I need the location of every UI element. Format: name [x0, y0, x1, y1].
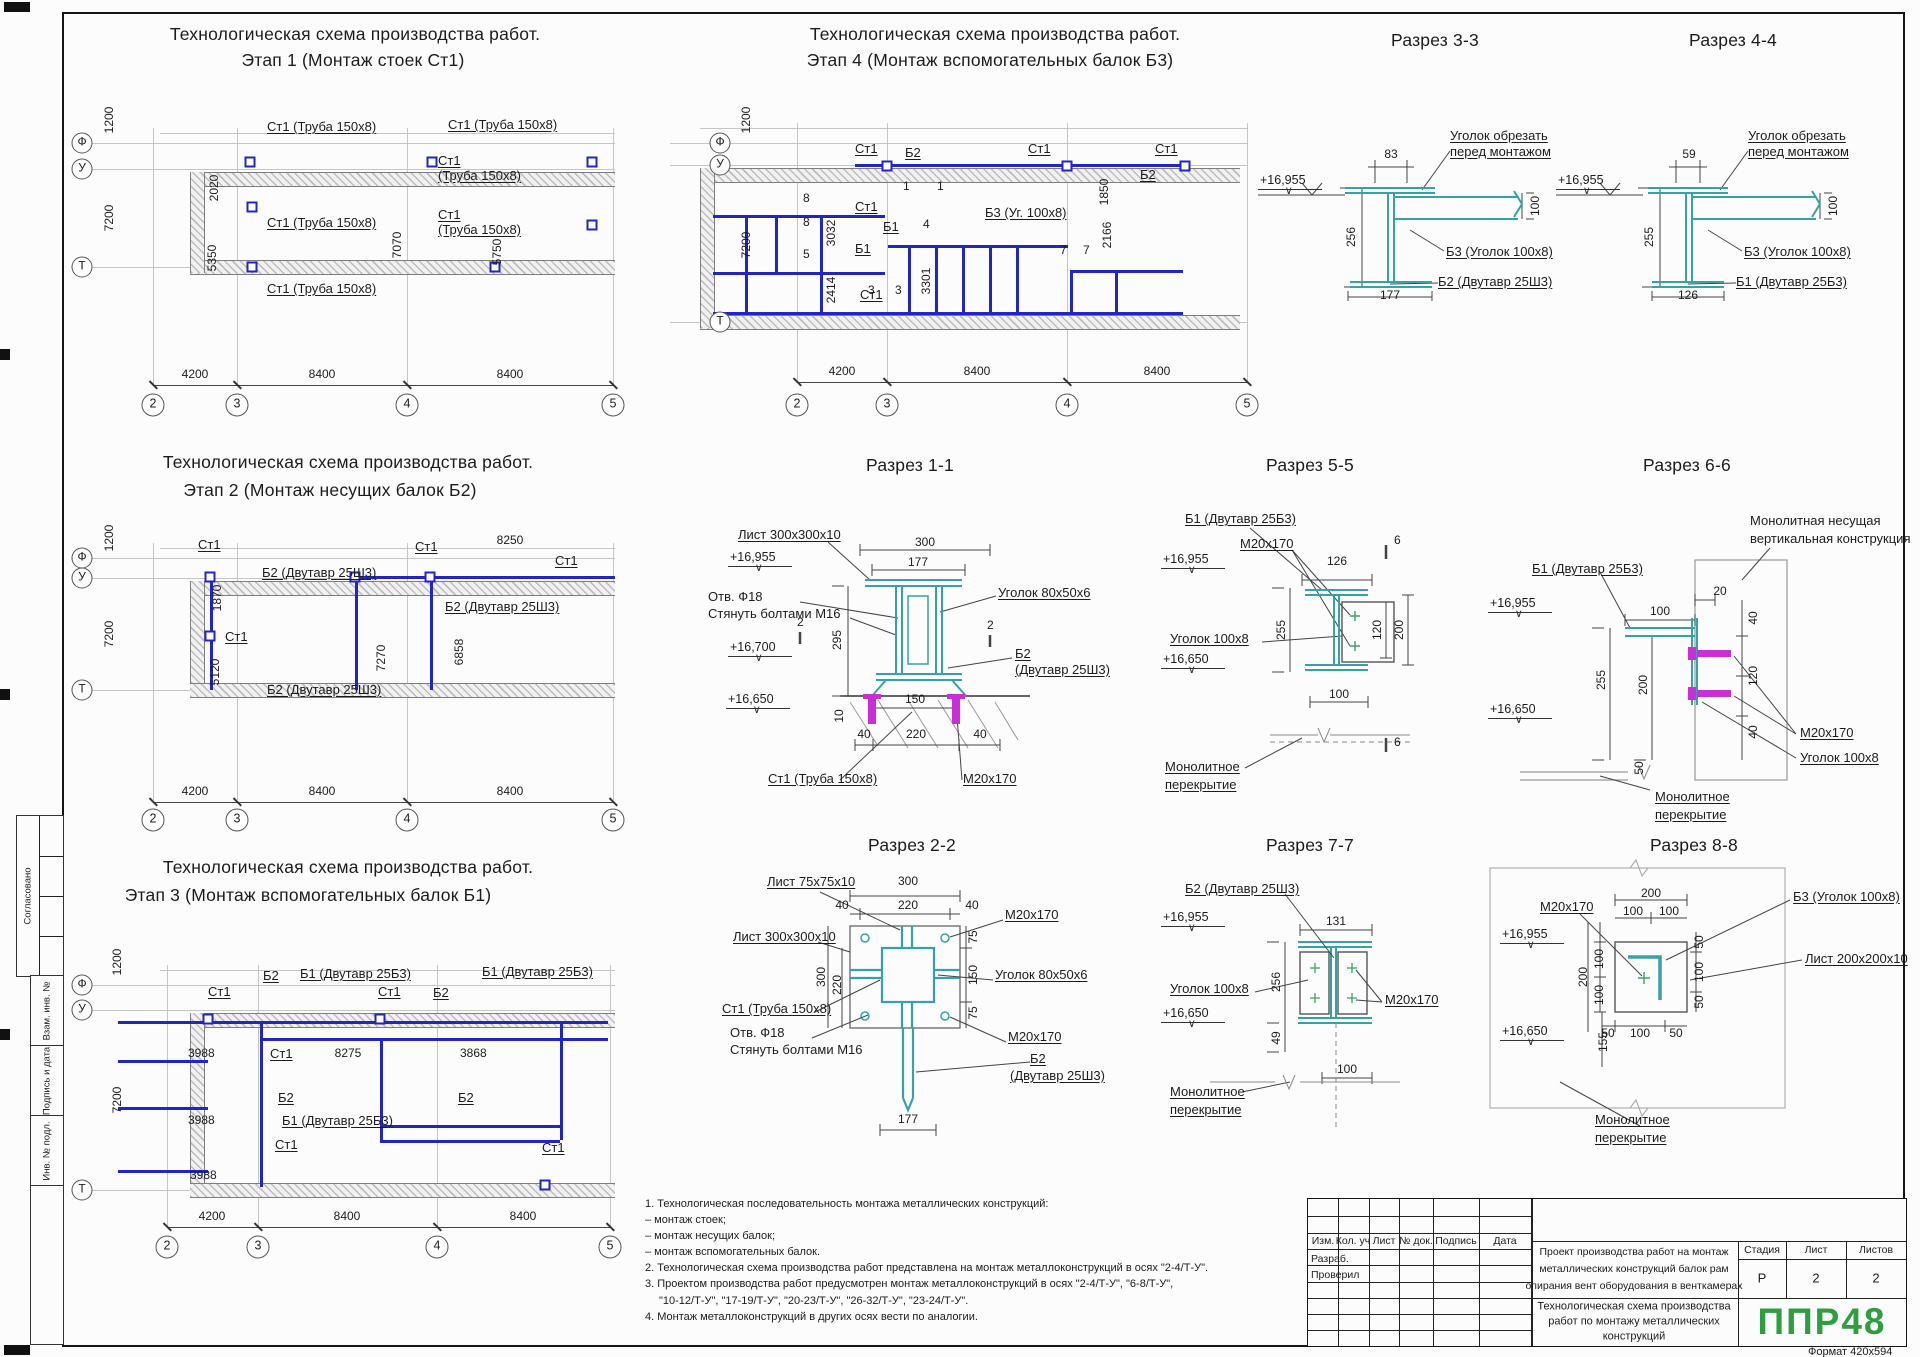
label-b2: Б2	[1140, 168, 1156, 183]
elevation: +16,955	[1161, 552, 1225, 569]
label-st1: Ст1 (Труба 150х8)	[722, 1002, 831, 1017]
section-5-5: Разрез 5-5 Б1 (	[1150, 450, 1440, 830]
dim: 3301	[920, 268, 934, 295]
dim: 7200	[111, 1087, 125, 1114]
dim: 100	[1623, 905, 1643, 919]
note-line: "10-12/Т-У", "17-19/Т-У", "20-23/Т-У", "…	[659, 1295, 968, 1308]
plan1-title-line1: Технологическая схема производства работ…	[170, 24, 540, 44]
elevation: +16,650	[1500, 1024, 1564, 1041]
label-otv: Отв. Ф18	[708, 590, 763, 605]
dim: 4200	[182, 368, 209, 382]
label-mono: Монолитное	[1170, 1085, 1245, 1100]
label-st1: (Труба 150х8)	[438, 223, 521, 238]
dim: 2020	[208, 175, 222, 202]
tb-header-kol: Кол. уч	[1336, 1235, 1370, 1247]
label-angle100: Уголок 100х8	[1170, 632, 1249, 647]
dim: 100	[1693, 962, 1707, 982]
dim: 40	[1747, 725, 1761, 738]
label-m20: М20х170	[1540, 900, 1593, 915]
label-mono: Монолитное	[1655, 790, 1730, 805]
sec-mark: 8	[803, 216, 810, 230]
label-sheet75: Лист 75х75х10	[767, 875, 855, 890]
dim: 8400	[309, 785, 336, 799]
column-st1	[540, 1180, 551, 1191]
dim: 120	[1747, 666, 1761, 686]
dim: 3988	[188, 1047, 215, 1061]
column-st1	[245, 157, 256, 168]
dim: 177	[898, 1113, 918, 1127]
dim: 7270	[375, 645, 389, 672]
tb-razrab: Разраб.	[1311, 1253, 1349, 1265]
edge-mark	[4, 2, 30, 12]
sign-date-label: Подпись и дата	[42, 1047, 53, 1115]
label-b1: Б1 (Двутавр 25Б3)	[282, 1114, 393, 1129]
tb-proveril: Проверил	[1311, 1269, 1359, 1281]
beam-b1	[713, 215, 885, 218]
wall	[190, 683, 615, 698]
stamp-cell-empty	[30, 1185, 64, 1345]
beam-b2	[355, 578, 358, 690]
label-b2: Б2	[905, 146, 921, 161]
axis-bubble-5: 5	[1236, 394, 1259, 417]
column-st1	[882, 161, 893, 172]
tb-header-list: Лист	[1373, 1235, 1396, 1247]
label-st1: Ст1	[438, 208, 461, 223]
plan-stage4: Технологическая схема производства работ…	[640, 20, 1260, 420]
dim: 50	[1633, 761, 1647, 774]
elevation: +16,650	[1488, 702, 1552, 719]
stamp-cell-vzam: Взам. инв. №	[30, 975, 64, 1047]
label-b3: Б3 (Уголок 100х8)	[1446, 245, 1553, 260]
sec-mark: 4	[923, 218, 930, 232]
tb-header-data: Дата	[1493, 1235, 1516, 1247]
dim: 50	[1669, 1027, 1682, 1041]
dim: 40	[965, 899, 978, 913]
label-b2: Б2 (Двутавр 25Ш3)	[1185, 882, 1299, 897]
beam-b3	[1070, 270, 1073, 312]
label-b2: Б2 (Двутавр 25Ш3)	[262, 566, 376, 581]
axis-bubble-5: 5	[602, 394, 625, 417]
edge-mark	[4, 1345, 30, 1355]
label-otv: Отв. Ф18	[730, 1026, 785, 1041]
dim: 126	[1327, 555, 1347, 569]
label-st1: Ст1	[270, 1047, 293, 1062]
dim: 1870	[211, 585, 225, 612]
plan2-title-line1: Технологическая схема производства работ…	[163, 452, 533, 472]
column-st1	[247, 202, 258, 213]
dim: 8400	[309, 368, 336, 382]
beam-b3	[1016, 245, 1019, 312]
beam-b1	[380, 1125, 560, 1128]
axis-bubble-4: 4	[396, 809, 419, 832]
dim: 300	[815, 967, 829, 987]
dim: 7070	[391, 232, 405, 259]
dim: 8400	[964, 365, 991, 379]
tb-sheet-value: 2	[1812, 1272, 1819, 1287]
dim: 1200	[103, 525, 117, 552]
dim: 255	[1643, 227, 1657, 247]
sec-mark: 5	[803, 248, 810, 262]
dim: 100	[1650, 605, 1670, 619]
plan-stage2: Технологическая схема производства работ…	[70, 450, 630, 830]
axis-bubble-f: Ф	[72, 975, 93, 996]
wall	[190, 172, 615, 187]
axis-bubble-u: У	[72, 159, 93, 180]
dim: 256	[1345, 227, 1359, 247]
elevation: +16,650	[726, 692, 790, 709]
dim: 20	[1713, 585, 1726, 599]
sec-mark: 6	[1394, 736, 1401, 750]
edge-mark	[0, 1029, 10, 1040]
dim: 3988	[188, 1114, 215, 1128]
tb-header-dok: № док.	[1399, 1235, 1433, 1247]
axis-bubble-4: 4	[1056, 394, 1079, 417]
dim: 1200	[103, 107, 117, 134]
column-st1	[587, 157, 598, 168]
label-cut: Уголок обрезать	[1450, 129, 1548, 144]
label-b2: Б2 (Двутавр 25Ш3)	[1438, 275, 1552, 290]
sec-mark: 2	[987, 619, 994, 633]
dim: 40	[835, 899, 848, 913]
title-block: Изм. Кол. уч Лист № док. Подпись Дата Ра…	[1307, 1198, 1907, 1347]
approved-label: Согласовано	[23, 867, 34, 924]
tb-header-sheets: Листов	[1859, 1244, 1893, 1256]
edge-mark	[0, 689, 10, 700]
axis-bubble-4: 4	[396, 394, 419, 417]
dim: 255	[1595, 670, 1609, 690]
axis-bubble-2: 2	[156, 1236, 179, 1259]
label-wall: вертикальная конструкция	[1750, 532, 1911, 547]
axis-bubble-t: Т	[72, 680, 93, 701]
plan3-title-line1: Технологическая схема производства работ…	[163, 857, 533, 877]
label-b2: Б2	[1030, 1052, 1046, 1067]
tb-sheets-value: 2	[1872, 1272, 1879, 1287]
axis-bubble-2: 2	[142, 809, 165, 832]
tb-doc-line3: конструкций	[1603, 1331, 1666, 1344]
label-st1: Ст1	[438, 154, 461, 169]
label-b2: (Двутавр 25Ш3)	[1010, 1069, 1105, 1084]
tb-doc-line2: работ по монтажу металлических	[1548, 1316, 1720, 1329]
plan-stage3: Технологическая схема производства работ…	[70, 855, 630, 1255]
label-b1: Б1 (Двутавр 25Б3)	[300, 967, 411, 982]
tb-project-line3: опирания вент оборудования в венткамерах	[1525, 1280, 1742, 1292]
dim: 4200	[182, 785, 209, 799]
sec-mark: 6	[1394, 534, 1401, 548]
wall	[190, 581, 615, 596]
label-st1: Ст1 (Труба 150х8)	[267, 120, 376, 135]
label-st1: Ст1	[860, 288, 883, 303]
sec-mark: 7	[1083, 244, 1090, 258]
drawing-sheet: Технологическая схема производства работ…	[0, 0, 1920, 1357]
dim: 100	[1593, 949, 1607, 969]
sec-mark: 1	[903, 180, 910, 194]
axis-bubble-u: У	[72, 1000, 93, 1021]
sec-mark: 8	[803, 192, 810, 206]
label-mono: Монолитное	[1165, 760, 1240, 775]
dim: 8400	[1144, 365, 1171, 379]
dim: 8275	[335, 1047, 362, 1061]
label-st1: Ст1	[1028, 142, 1051, 157]
beam-b3	[962, 245, 965, 312]
column-st1	[587, 220, 598, 231]
label-wall: Монолитная несущая	[1750, 514, 1881, 529]
elevation: +16,955	[1500, 927, 1564, 944]
axis-bubble-2: 2	[786, 394, 809, 417]
plan4-title-line1: Технологическая схема производства работ…	[810, 24, 1180, 44]
section-1-1: Разрез 1-1	[700, 450, 1100, 810]
column-st1	[375, 1014, 386, 1025]
label-mono: перекрытие	[1595, 1131, 1666, 1146]
dim: 7200	[740, 232, 754, 259]
dim: 1200	[111, 949, 125, 976]
dim: 8400	[334, 1210, 361, 1224]
axis-bubble-f: Ф	[72, 548, 93, 569]
label-st1: Ст1 (Труба 150х8)	[768, 772, 877, 787]
plan3-title-line2: Этап 3 (Монтаж вспомогательных балок Б1)	[125, 885, 492, 905]
dim: 100	[1659, 905, 1679, 919]
axis-bubble-3: 3	[247, 1236, 270, 1259]
elevation: +16,650	[1161, 1006, 1225, 1023]
axis-bubble-u: У	[710, 155, 731, 176]
dim: 8400	[510, 1210, 537, 1224]
tb-stage-value: Р	[1758, 1272, 1767, 1287]
label-b1: Б1 (Двутавр 25Б3)	[1736, 275, 1847, 290]
elevation: +16,955	[1161, 910, 1225, 927]
dim: 5120	[209, 659, 223, 686]
label-st1: (Труба 150х8)	[438, 169, 521, 184]
label-sheet200: Лист 200х200х10	[1805, 952, 1908, 967]
section-8-8: Разрез 8-8 М20х170 200 100 100	[1480, 830, 1910, 1160]
beam-b2	[260, 1038, 608, 1041]
dim: 6858	[453, 639, 467, 666]
label-angle80: Уголок 80х50х6	[998, 586, 1091, 601]
note-line: – монтаж несущих балок;	[645, 1230, 775, 1243]
tb-project-line1: Проект производства работ на монтаж	[1539, 1246, 1728, 1258]
dim: 75	[967, 930, 981, 943]
note-line: 1. Технологическая последовательность мо…	[645, 1198, 1048, 1211]
inv-label: Инв. № подл.	[42, 1121, 53, 1180]
dim: 100	[1630, 1027, 1650, 1041]
label-angle100: Уголок 100х8	[1800, 751, 1879, 766]
beam-b3	[1115, 270, 1118, 312]
label-st1: Ст1 (Труба 150х8)	[267, 282, 376, 297]
dim: 2166	[1101, 222, 1115, 249]
label-st1: Ст1	[855, 200, 878, 215]
label-b1: Б1	[855, 242, 871, 257]
label-b2: Б2 (Двутавр 25Ш3)	[267, 683, 381, 698]
beam-b1	[888, 245, 1068, 248]
label-m20: М20х170	[1008, 1030, 1061, 1045]
dim: 5350	[206, 245, 220, 272]
axis-bubble-f: Ф	[72, 133, 93, 154]
dim: 1850	[1098, 179, 1112, 206]
label-cut: Уголок обрезать	[1748, 129, 1846, 144]
label-tie: Стянуть болтами М16	[730, 1043, 863, 1058]
dim: 300	[898, 875, 918, 889]
dim: 5750	[491, 239, 505, 266]
beam-b3	[820, 215, 823, 312]
section-6-6: Разрез 6-6 Монолитная	[1480, 450, 1910, 850]
label-sheet300: Лист 300х300х10	[738, 528, 841, 543]
label-st1: Ст1 (Труба 150х8)	[267, 216, 376, 231]
wall	[700, 168, 715, 328]
axis-bubble-f: Ф	[710, 133, 731, 154]
note-line: 4. Монтаж металлоконструкций в других ос…	[645, 1311, 978, 1324]
label-m20: М20х170	[1005, 908, 1058, 923]
plan4-title-line2: Этап 4 (Монтаж вспомогательных балок Б3)	[807, 50, 1174, 70]
dim: 8400	[497, 368, 524, 382]
dim: 100	[1529, 196, 1543, 216]
axis-bubble-3: 3	[876, 394, 899, 417]
beam-b2	[355, 576, 615, 579]
axis-bubble-u: У	[72, 568, 93, 589]
plan1-title-line2: Этап 1 (Монтаж стоек Ст1)	[242, 50, 465, 70]
label-angle100: Уголок 100х8	[1170, 982, 1249, 997]
label-st1: Ст1	[542, 1141, 565, 1156]
beam-b2	[855, 164, 1185, 167]
label-cut: перед монтажом	[1748, 145, 1849, 160]
axis-bubble-t: Т	[710, 312, 731, 333]
dim: 256	[1270, 972, 1284, 992]
tb-project-line2: металлических конструкций балок рам	[1539, 1263, 1728, 1275]
dim: 177	[1380, 289, 1400, 303]
axis-bubble-t: Т	[72, 1180, 93, 1201]
label-b2: Б2 (Двутавр 25Ш3)	[445, 600, 559, 615]
dim: 131	[1326, 915, 1346, 929]
column-st1	[425, 572, 436, 583]
beam-b2	[430, 578, 433, 690]
label-b1: Б1 (Двутавр 25Б3)	[482, 965, 593, 980]
elevation: +16,955	[1488, 596, 1552, 613]
tb-header-sheet: Лист	[1805, 1244, 1828, 1256]
label-b2: Б2	[1015, 647, 1031, 662]
dim: 126	[1678, 289, 1698, 303]
dim: 200	[1637, 675, 1651, 695]
label-b1: Б1	[883, 220, 899, 235]
section-3-3: Разрез 3-3 +16,955 83 Уголок обрезать пе…	[1250, 25, 1550, 305]
dim: 4200	[829, 365, 856, 379]
dim: 8250	[497, 534, 524, 548]
label-b2: Б2	[278, 1091, 294, 1106]
tb-header-izm: Изм.	[1312, 1235, 1335, 1247]
dim: 7200	[103, 205, 117, 232]
label-sheet300: Лист 300х300х10	[733, 930, 836, 945]
dim: 255	[1275, 620, 1289, 640]
tb-header-stage: Стадия	[1744, 1244, 1780, 1256]
dim: 59	[1682, 148, 1695, 162]
beam-b3	[935, 245, 938, 312]
column-st1	[203, 1014, 214, 1025]
dim: 150	[905, 693, 925, 707]
sec44-drawing	[1548, 25, 1848, 305]
label-st1: Ст1	[1155, 142, 1178, 157]
label-m20: М20х170	[1800, 726, 1853, 741]
label-b3: Б3 (Уголок 100х8)	[1744, 245, 1851, 260]
dim: 100	[1329, 688, 1349, 702]
note-line: – монтаж вспомогательных балок.	[645, 1246, 820, 1259]
dim: 220	[831, 975, 845, 995]
beam-b2	[560, 1021, 563, 1140]
label-b3: Б3 (Уголок 100х8)	[1793, 890, 1900, 905]
wall	[700, 315, 1240, 330]
dim: 100	[1337, 1063, 1357, 1077]
elevation: +16,955	[1556, 173, 1620, 190]
dim: 120	[1371, 620, 1385, 640]
dim: 220	[898, 899, 918, 913]
company-logo: ППР48	[1757, 1301, 1886, 1343]
label-st1: Ст1	[555, 554, 578, 569]
wall	[700, 168, 1240, 183]
dim: 220	[906, 728, 926, 742]
beam-b1	[713, 312, 1183, 315]
label-b2: (Двутавр 25Ш3)	[1015, 663, 1110, 678]
beam-b3	[908, 245, 911, 312]
sec-mark: 7	[1060, 244, 1067, 258]
dim: 40	[973, 728, 986, 742]
column-st1	[205, 572, 216, 583]
beam-b1	[713, 272, 885, 275]
dim: 200	[1641, 887, 1661, 901]
plan2-title-line2: Этап 2 (Монтаж несущих балок Б2)	[183, 480, 476, 500]
label-m20: М20х170	[1385, 993, 1438, 1008]
sec11-drawing	[700, 450, 1100, 810]
dim: 3988	[190, 1169, 217, 1183]
axis-bubble-5: 5	[599, 1236, 622, 1259]
label-b2: Б2	[458, 1091, 474, 1106]
beam-b3	[775, 215, 778, 272]
section-2-2: Разрез 2-2 Лист 75х75х10 300 40	[700, 830, 1100, 1160]
sec-mark: 1	[937, 180, 944, 194]
elevation: +16,955	[728, 550, 792, 567]
dim: 3868	[460, 1047, 487, 1061]
note-line: – монтаж стоек;	[645, 1214, 726, 1227]
dim: 50	[1693, 935, 1707, 948]
beam-b1	[118, 1021, 608, 1024]
tb-header-podpis: Подпись	[1435, 1235, 1477, 1247]
dim: 100	[1827, 196, 1841, 216]
beam-b1	[380, 1140, 560, 1143]
wall	[190, 581, 205, 683]
axis-bubble-t: Т	[72, 257, 93, 278]
dim: 50	[1693, 995, 1707, 1008]
label-tie: Стянуть болтами М16	[708, 607, 841, 622]
tb-doc-line1: Технологическая схема производства	[1537, 1301, 1730, 1314]
section-7-7: Разрез 7-7	[1150, 830, 1450, 1160]
label-st1: Ст1	[275, 1138, 298, 1153]
column-st1	[427, 157, 438, 168]
dim: 7200	[103, 621, 117, 648]
label-mono: перекрытие	[1170, 1103, 1241, 1118]
label-b2: Б2	[263, 969, 279, 984]
label-st1: Ст1	[198, 538, 221, 553]
column-st1	[1180, 161, 1191, 172]
dim: 83	[1384, 148, 1397, 162]
label-b3: Б3 (Уг. 100х8)	[985, 206, 1067, 221]
column-st1	[205, 631, 216, 642]
dim: 177	[908, 556, 928, 570]
section-4-4: Разрез 4-4 +16,955 59 Уголок обрезать пе…	[1548, 25, 1848, 305]
stamp-cell-sign: Подпись и дата	[30, 1045, 64, 1117]
wall	[190, 1183, 615, 1198]
dim: 3032	[825, 220, 839, 247]
dim: 50	[1601, 1027, 1614, 1041]
label-st1: Ст1 (Труба 150х8)	[448, 118, 557, 133]
sec-mark: 3	[895, 284, 902, 298]
dim: 4200	[199, 1210, 226, 1224]
dim: 200	[1393, 620, 1407, 640]
axis-bubble-5: 5	[602, 809, 625, 832]
dim: 40	[1747, 611, 1761, 624]
